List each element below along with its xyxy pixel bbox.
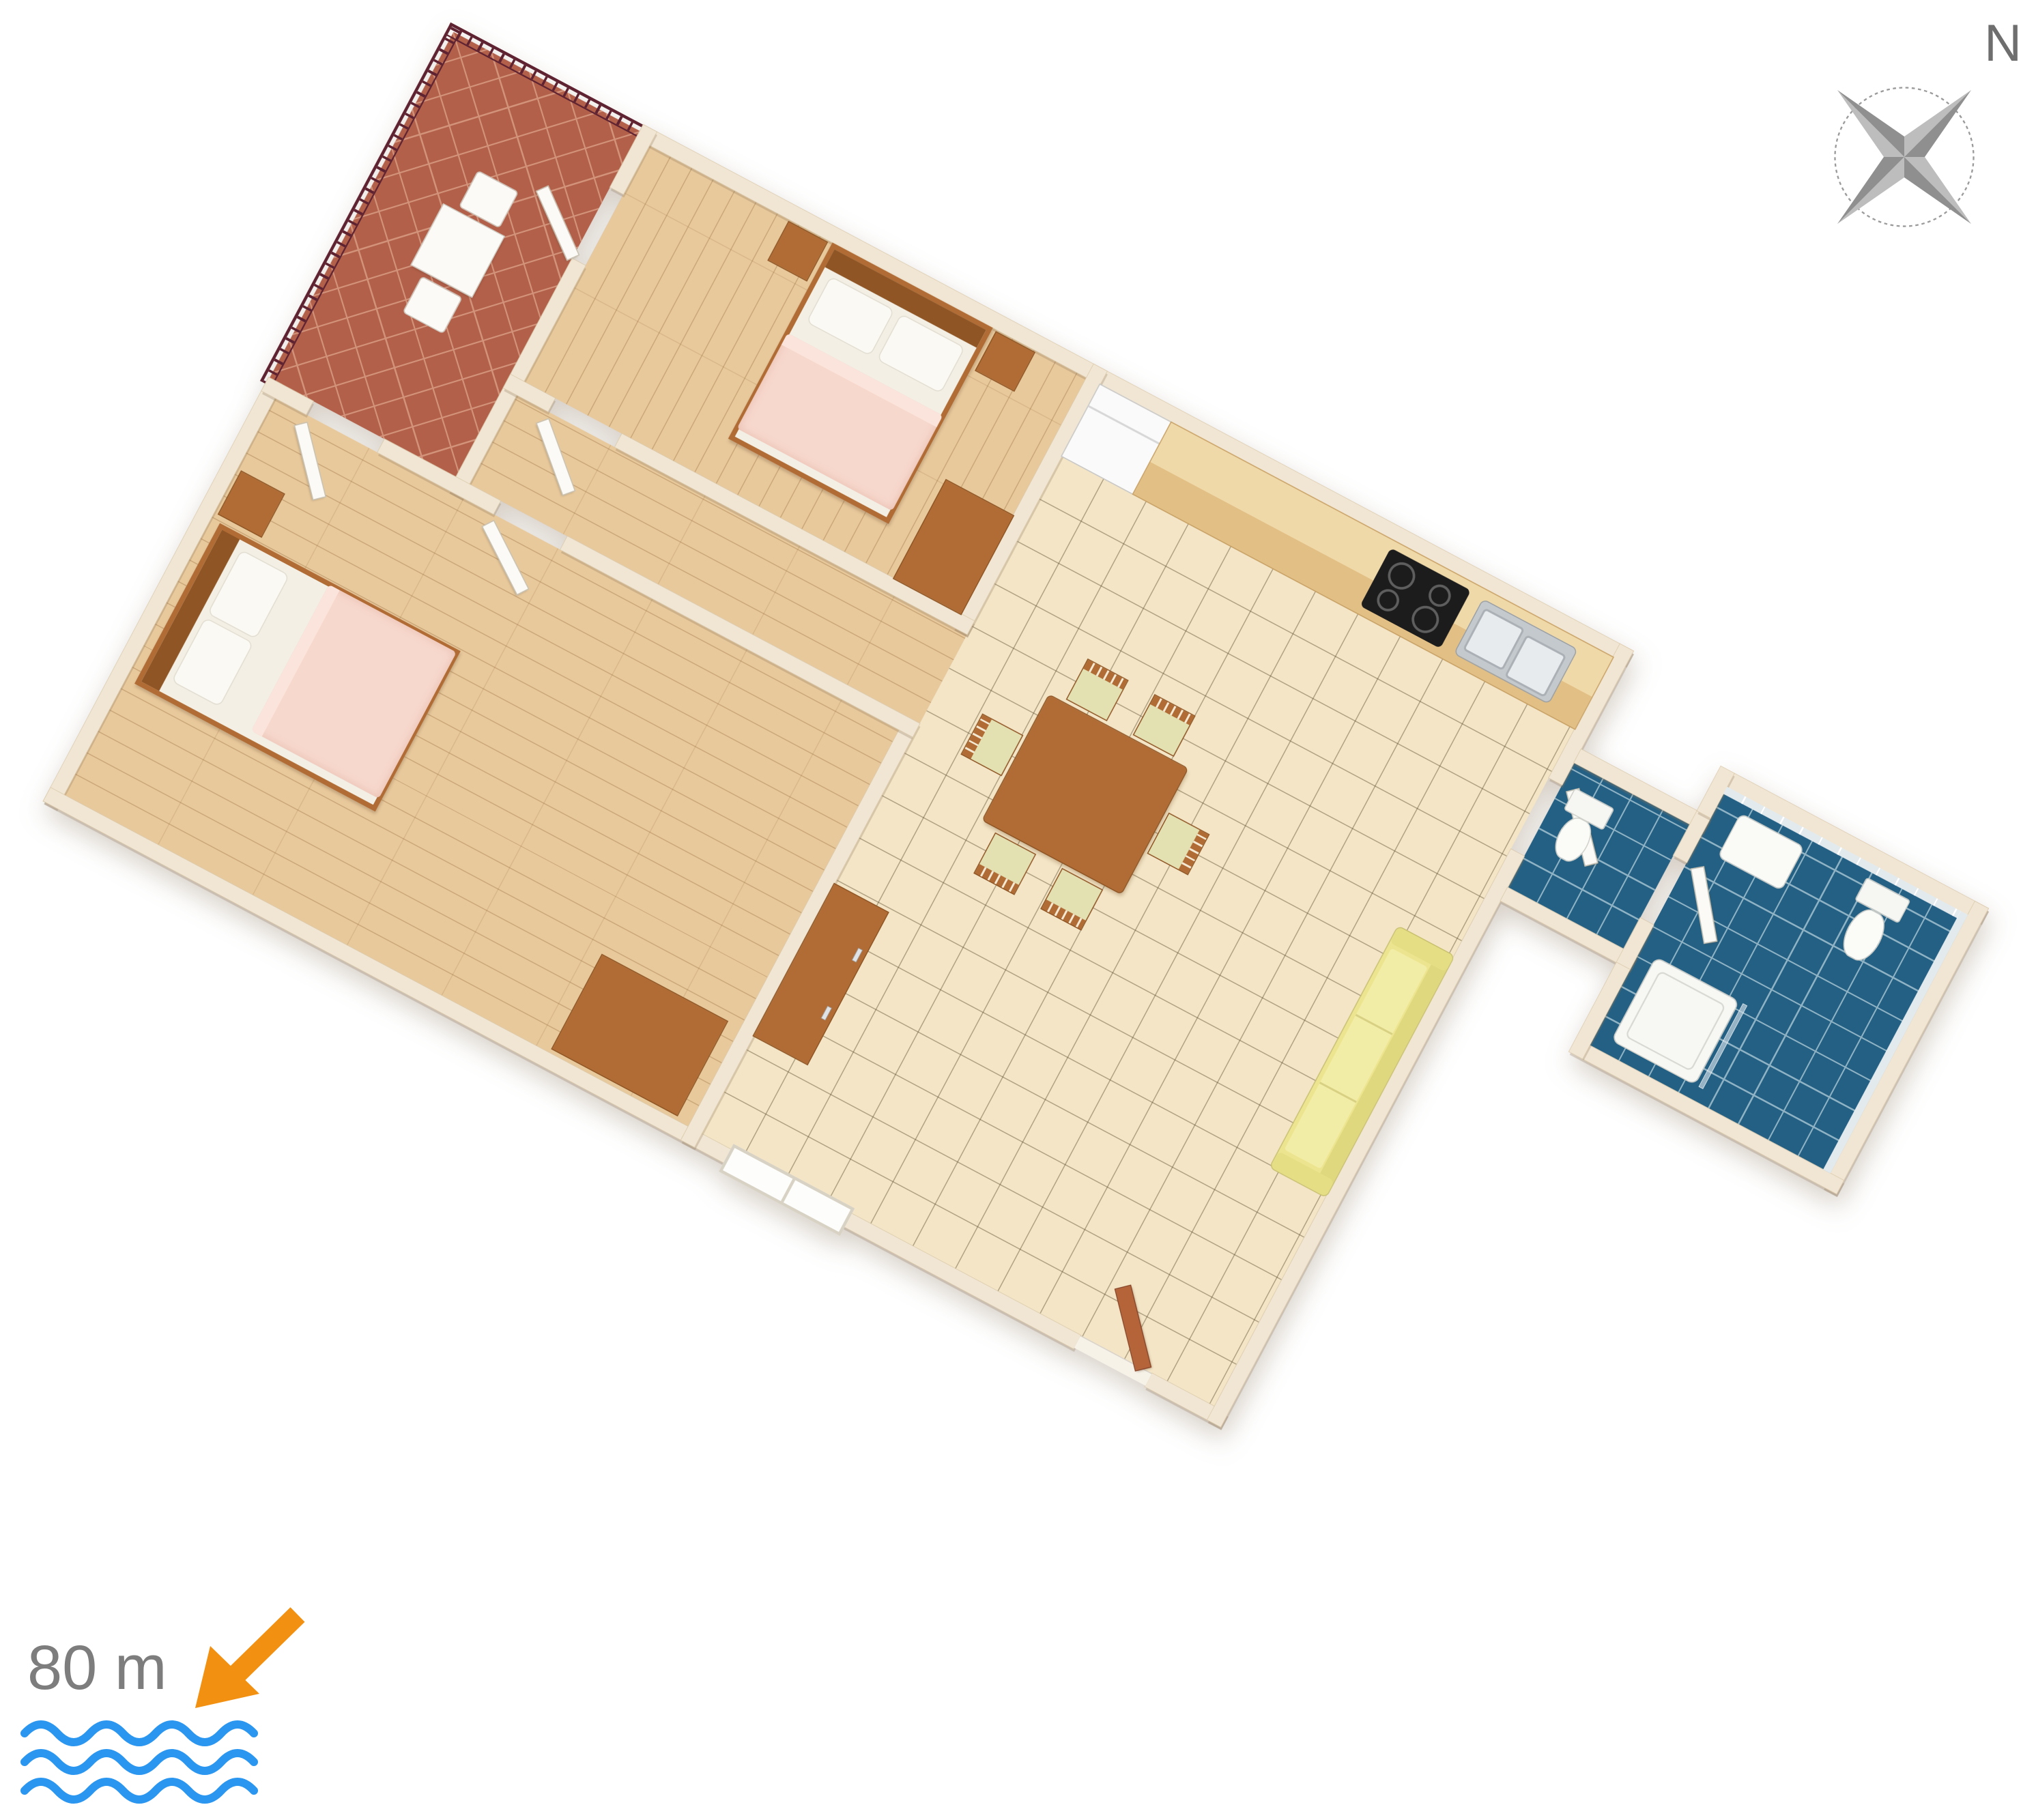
distance-label: 80 m bbox=[27, 1632, 167, 1704]
wardrobe-handle bbox=[822, 1007, 831, 1020]
sea-waves-icon bbox=[19, 1718, 285, 1807]
compass-rose-icon bbox=[1802, 55, 2007, 259]
floor-plan-page: N 80 m bbox=[0, 0, 2036, 1820]
fridge-door-line bbox=[1088, 405, 1160, 445]
sea-direction-arrow-icon bbox=[190, 1602, 309, 1715]
window-mullion bbox=[781, 1179, 795, 1202]
wardrobe-handle bbox=[852, 949, 862, 962]
apartment-floor-plan bbox=[20, 20, 2036, 1677]
burner bbox=[1373, 586, 1403, 616]
compass: N bbox=[1802, 14, 2034, 259]
